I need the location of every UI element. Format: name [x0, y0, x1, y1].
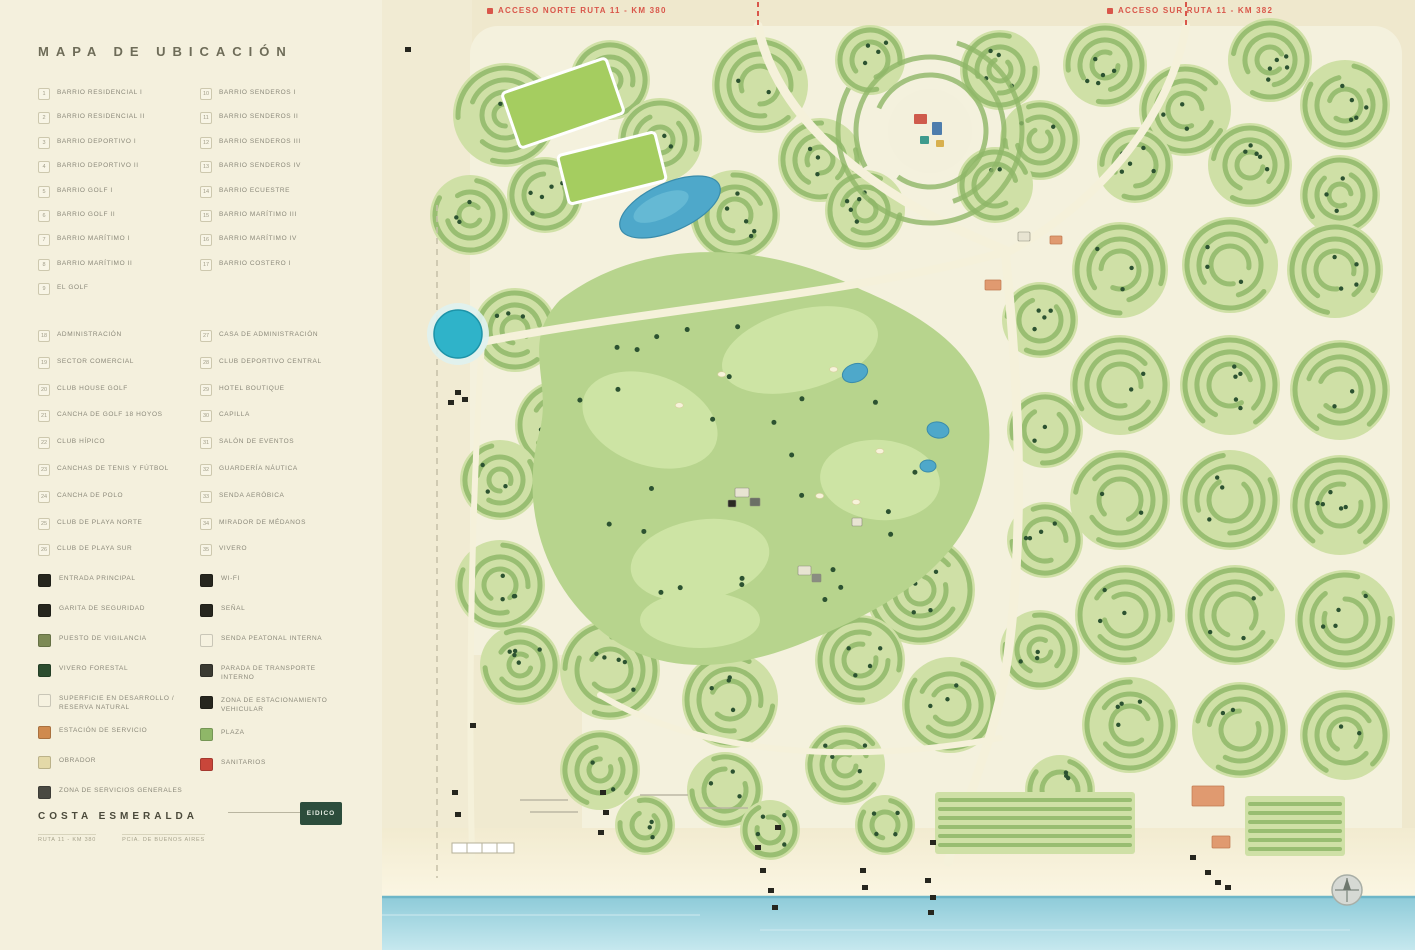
building-dot [930, 895, 936, 900]
access-label-north: ACCESO NORTE RUTA 11 - KM 380 [487, 6, 667, 15]
legend-item: 27Casa de Administración [200, 330, 368, 357]
orange-building [1192, 786, 1224, 806]
parking-icon [200, 696, 213, 709]
legend-item-label: Barrio Senderos I [219, 88, 296, 98]
legend-item: 20Club House Golf [38, 384, 200, 411]
plaza-building [914, 114, 927, 124]
legend-item-number: 25 [38, 518, 50, 530]
neighborhood-blob [825, 170, 905, 250]
legend-footer: COSTA ESMERALDA EIDICO Ruta 11 - Km 380P… [38, 806, 358, 843]
legend-item-number: 33 [200, 491, 212, 503]
legend-item: 1Barrio Residencial I [38, 88, 200, 112]
legend-item-number: 23 [38, 464, 50, 476]
legend-item-number: 30 [200, 410, 212, 422]
legend-item: 29Hotel Boutique [200, 384, 368, 411]
legend-item-number: 1 [38, 88, 50, 100]
orange-building [1050, 236, 1062, 244]
legend-item-label: Wi-Fi [221, 574, 240, 584]
legend-section-symbols: Entrada PrincipalGarita de SeguridadPues… [38, 574, 368, 813]
building-dot [1215, 880, 1221, 885]
access-label-south: ACCESO SUR RUTA 11 - KM 382 [1107, 6, 1273, 15]
legend-item-label: Plaza [221, 728, 245, 738]
legend-item-number: 22 [38, 437, 50, 449]
building-dot [598, 830, 604, 835]
legend-item: 30Capilla [200, 410, 368, 437]
legend-item-label: Señal [221, 604, 245, 614]
legend-item-label: Canchas de Tenis y Fútbol [57, 464, 169, 474]
developer-logo: EIDICO [300, 802, 342, 825]
legend-item-label: Salón de Eventos [219, 437, 294, 447]
service-station-icon [38, 726, 51, 739]
legend-item-number: 27 [200, 330, 212, 342]
legend-item-number: 29 [200, 384, 212, 396]
legend-symbol-item: Sanitarios [200, 758, 368, 771]
legend-item: 33Senda Aeróbica [200, 491, 368, 518]
legend-item-label: Sector Comercial [57, 357, 134, 367]
golf-pond [920, 460, 936, 472]
building-dot [600, 790, 606, 795]
brand-name: COSTA ESMERALDA [38, 811, 198, 822]
legend-item-number: 2 [38, 112, 50, 124]
legend-item-label: Barrio Marítimo IV [219, 234, 297, 244]
location-map-page: MAPA DE UBICACIÓN 1Barrio Residencial I2… [0, 0, 1415, 950]
legend-item-number: 8 [38, 259, 50, 271]
footer-address-line: Pcia. de Buenos Aires [122, 834, 205, 843]
legend-item-label: Cancha de Golf 18 Hoyos [57, 410, 163, 420]
legend-item: 26Club de Playa Sur [38, 544, 200, 571]
legend-symbol-item: Plaza [200, 728, 368, 741]
building-dot [1225, 885, 1231, 890]
orange-building [1212, 836, 1230, 848]
building-dot [862, 885, 868, 890]
legend-item-label: Barrio Deportivo II [57, 161, 139, 171]
legend-item-label: Barrio Marítimo I [57, 234, 130, 244]
legend-item-label: Club House Golf [57, 384, 128, 394]
legend-item-label: Barrio Senderos III [219, 137, 301, 147]
amenity-building [728, 500, 736, 507]
legend-item: 5Barrio Golf I [38, 186, 200, 210]
legend-symbol-item: Parada de Transporte Interno [200, 664, 368, 682]
bus-stop-icon [200, 664, 213, 677]
amenity-building [852, 518, 862, 526]
legend-item: 21Cancha de Golf 18 Hoyos [38, 410, 200, 437]
legend-item-label: Barrio Senderos II [219, 112, 298, 122]
building-dot [405, 47, 411, 52]
legend-item-label: Club Deportivo Central [219, 357, 322, 367]
trail-icon [200, 634, 213, 647]
legend-item: 7Barrio Marítimo I [38, 234, 200, 258]
plaza-icon [200, 728, 213, 741]
legend-item-label: Barrio Costero I [219, 259, 291, 269]
building-dot [928, 910, 934, 915]
legend-item-number: 26 [38, 544, 50, 556]
legend-item: 35Vivero [200, 544, 368, 571]
legend-item-label: Barrio Deportivo I [57, 137, 136, 147]
legend-item-number: 31 [200, 437, 212, 449]
legend-item: 8Barrio Marítimo II [38, 259, 200, 283]
legend-symbol-item: Senda Peatonal Interna [200, 634, 368, 647]
security-icon [38, 604, 51, 617]
building-dot [860, 868, 866, 873]
legend-item-label: Guardería Náutica [219, 464, 298, 474]
legend-item-label: Club de Playa Norte [57, 518, 142, 528]
compass-icon [1332, 875, 1362, 905]
legend-item-label: Administración [57, 330, 122, 340]
amenity-building [750, 498, 760, 506]
legend-section-amenities: 18Administración19Sector Comercial20Club… [38, 330, 368, 571]
building-dot [455, 390, 461, 395]
legend-item: 31Salón de Eventos [200, 437, 368, 464]
legend-symbol-item: Zona de Servicios Generales [38, 786, 200, 799]
legend-symbol-item: Superficie en Desarrollo / Reserva Natur… [38, 694, 200, 712]
legend-item-number: 34 [200, 518, 212, 530]
neighborhood-blob [1063, 23, 1147, 107]
legend-item-label: Vivero Forestal [59, 664, 128, 674]
legend-item: 10Barrio Senderos I [200, 88, 368, 112]
neighborhood-blob [1295, 570, 1395, 670]
building-dot [1190, 855, 1196, 860]
entrance-icon [38, 574, 51, 587]
signal-icon [200, 604, 213, 617]
maritimo-block [1245, 796, 1345, 856]
legend-item-number: 5 [38, 186, 50, 198]
legend-item: 11Barrio Senderos II [200, 112, 368, 136]
legend-item-number: 7 [38, 234, 50, 246]
building-dot [760, 868, 766, 873]
building-dot [768, 888, 774, 893]
legend-item: 4Barrio Deportivo II [38, 161, 200, 185]
building-dot [930, 840, 936, 845]
legend-symbol-item: Señal [200, 604, 368, 617]
building-dot [462, 397, 468, 402]
legend-item-label: Barrio Ecuestre [219, 186, 290, 196]
legend-item: 3Barrio Deportivo I [38, 137, 200, 161]
legend-symbol-item: Garita de Seguridad [38, 604, 200, 617]
maritimo-block [935, 792, 1135, 854]
amenity-building [735, 488, 749, 497]
legend-item: 9El Golf [38, 283, 200, 307]
amenity-building [812, 574, 821, 582]
legend-item: 16Barrio Marítimo IV [200, 234, 368, 258]
wifi-icon [200, 574, 213, 587]
neighborhood-blob [855, 795, 915, 855]
legend-item-number: 16 [200, 234, 212, 246]
legend-item-label: Capilla [219, 410, 250, 420]
legend-item-number: 32 [200, 464, 212, 476]
legend-item: 6Barrio Golf II [38, 210, 200, 234]
legend-item: 34Mirador de Médanos [200, 518, 368, 545]
legend-item-number: 12 [200, 137, 212, 149]
legend-item-label: Barrio Marítimo III [219, 210, 297, 220]
legend-item: 14Barrio Ecuestre [200, 186, 368, 210]
legend-item-label: Zona de Servicios Generales [59, 786, 182, 796]
access-marker-icon [1107, 8, 1113, 14]
building-dot [772, 905, 778, 910]
legend-item-number: 35 [200, 544, 212, 556]
legend-item-number: 11 [200, 112, 212, 124]
building-dot [603, 810, 609, 815]
legend-item-label: Senda Peatonal Interna [221, 634, 322, 644]
legend-item-label: Barrio Residencial I [57, 88, 142, 98]
page-title: MAPA DE UBICACIÓN [38, 44, 293, 59]
legend-item-number: 17 [200, 259, 212, 271]
legend-item-label: Parada de Transporte Interno [221, 664, 351, 682]
legend-item-number: 13 [200, 161, 212, 173]
legend-item-number: 19 [38, 357, 50, 369]
legend-item-number: 3 [38, 137, 50, 149]
plaza-building [936, 140, 944, 147]
building-dot [448, 400, 454, 405]
watch-post-icon [38, 634, 51, 647]
legend-item: 22Club Hípico [38, 437, 200, 464]
legend-item: 25Club de Playa Norte [38, 518, 200, 545]
legend-item: 15Barrio Marítimo III [200, 210, 368, 234]
legend-symbol-item: Zona de Estacionamiento Vehicular [200, 696, 368, 714]
legend-item-number: 9 [38, 283, 50, 295]
legend-item-number: 18 [38, 330, 50, 342]
restrooms-icon [200, 758, 213, 771]
legend-item-number: 15 [200, 210, 212, 222]
legend-item: 24Cancha de Polo [38, 491, 200, 518]
plaza-building [932, 122, 942, 135]
legend-item-number: 24 [38, 491, 50, 503]
legend-item-label: Cancha de Polo [57, 491, 123, 501]
amenity-building [1018, 232, 1030, 241]
future-area-icon [38, 694, 51, 707]
legend-section-barrios: 1Barrio Residencial I2Barrio Residencial… [38, 88, 368, 308]
legend-symbol-item: Entrada Principal [38, 574, 200, 587]
legend-item-label: Club Hípico [57, 437, 105, 447]
footer-address-line: Ruta 11 - Km 380 [38, 834, 96, 843]
legend-symbol-item: Wi-Fi [200, 574, 368, 587]
legend-item-label: Barrio Golf I [57, 186, 113, 196]
legend-item-label: Vivero [219, 544, 247, 554]
legend-item-label: Estación de Servicio [59, 726, 147, 736]
legend-item-number: 20 [38, 384, 50, 396]
legend-symbol-item: Puesto de Vigilancia [38, 634, 200, 647]
legend-item-label: Garita de Seguridad [59, 604, 145, 614]
legend-item-number: 4 [38, 161, 50, 173]
forest-icon [38, 664, 51, 677]
legend-item-label: El Golf [57, 283, 88, 293]
neighborhood-blob [1072, 222, 1168, 318]
building-dot [470, 723, 476, 728]
legend-item-label: Obrador [59, 756, 96, 766]
legend-item: 12Barrio Senderos III [200, 137, 368, 161]
building-dot [452, 790, 458, 795]
legend-item: 17Barrio Costero I [200, 259, 368, 283]
orange-building [985, 280, 1001, 290]
legend-item: 2Barrio Residencial II [38, 112, 200, 136]
legend-item: 18Administración [38, 330, 200, 357]
legend-item-label: Barrio Marítimo II [57, 259, 132, 269]
legend-item: 19Sector Comercial [38, 357, 200, 384]
legend-item-label: Superficie en Desarrollo / Reserva Natur… [59, 694, 189, 712]
works-icon [38, 756, 51, 769]
legend-symbol-item: Obrador [38, 756, 200, 769]
legend-item-number: 14 [200, 186, 212, 198]
scale-bar [452, 843, 514, 853]
legend-item: 28Club Deportivo Central [200, 357, 368, 384]
legend-item-label: Entrada Principal [59, 574, 136, 584]
legend-item-label: Hotel Boutique [219, 384, 285, 394]
legend-item-label: Puesto de Vigilancia [59, 634, 147, 644]
legend-item-label: Barrio Golf II [57, 210, 115, 220]
building-dot [775, 825, 781, 830]
legend-item-number: 6 [38, 210, 50, 222]
access-marker-icon [487, 8, 493, 14]
building-dot [455, 812, 461, 817]
legend-item-number: 28 [200, 357, 212, 369]
services-area-icon [38, 786, 51, 799]
legend-item-label: Mirador de Médanos [219, 518, 306, 528]
legend-item-label: Senda Aeróbica [219, 491, 284, 501]
legend-item-label: Barrio Residencial II [57, 112, 145, 122]
legend-item-label: Club de Playa Sur [57, 544, 132, 554]
legend-item: 23Canchas de Tenis y Fútbol [38, 464, 200, 491]
legend-item-number: 21 [38, 410, 50, 422]
entrance-pond [434, 310, 482, 358]
legend-item-label: Casa de Administración [219, 330, 318, 340]
legend-item: 13Barrio Senderos IV [200, 161, 368, 185]
legend-item: 32Guardería Náutica [200, 464, 368, 491]
amenity-building [798, 566, 811, 575]
building-dot [925, 878, 931, 883]
neighborhood-blob [615, 795, 675, 855]
legend-item-label: Barrio Senderos IV [219, 161, 301, 171]
legend-symbol-item: Estación de Servicio [38, 726, 200, 739]
legend-panel: MAPA DE UBICACIÓN 1Barrio Residencial I2… [0, 0, 382, 950]
building-dot [1205, 870, 1211, 875]
legend-item-label: Zona de Estacionamiento Vehicular [221, 696, 351, 714]
building-dot [755, 845, 761, 850]
legend-item-label: Sanitarios [221, 758, 266, 768]
legend-symbol-item: Vivero Forestal [38, 664, 200, 677]
legend-item-number: 10 [200, 88, 212, 100]
plaza-building [920, 136, 929, 144]
